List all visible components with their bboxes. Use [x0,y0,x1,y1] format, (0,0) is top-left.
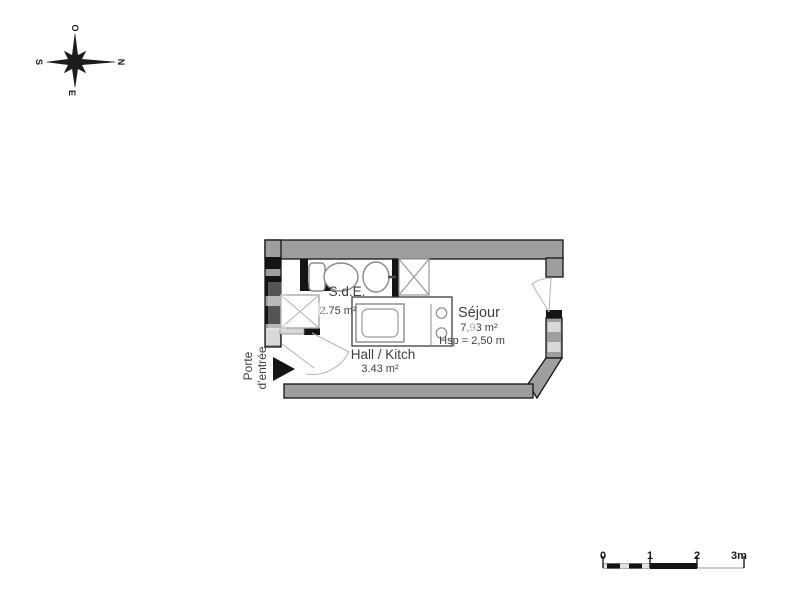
scale-dash [629,564,642,569]
room-area-sejour: 7,93 m² [460,322,498,334]
room-name-sde: S.d.E. [329,284,366,299]
entrance-label-line2: d'entrée [255,346,269,389]
sejour-door-closed [549,278,551,312]
sejour-door-leaf [532,284,549,312]
toilet-tank [309,263,325,291]
room-area-sde: 2.75 m² [319,305,357,317]
room-height-sejour: Hsp = 2,50 m [439,335,505,347]
wall-bottom [284,384,533,398]
shower [281,295,319,328]
washbasin-bowl [363,262,389,292]
room-name-hall: Hall / Kitch [351,347,416,362]
sde-door-arc [306,352,349,374]
compass-rose: O N S E [34,24,126,96]
wall-left-dark-segment [265,257,281,269]
watermark-fragment [268,282,286,330]
kitchen-block [352,297,452,346]
entrance-door-leaf [282,344,314,368]
scale-label-1: 1 [647,550,653,562]
entrance-label-line1: Porte [241,351,255,380]
sejour-door-arc [532,278,551,284]
floor-plan-svg: O N S E [0,0,800,600]
window-band-upper [548,322,561,332]
door-hinge-block-sde [304,328,320,335]
watermark-fragment [316,303,324,316]
room-name-sejour: Séjour [458,305,500,321]
window-band-lower [548,342,561,352]
scale-label-2: 2 [694,550,700,562]
closet [399,259,429,295]
compass-north-label: N [116,59,126,66]
compass-star [47,34,115,87]
kitchen-appliance-door [362,309,398,337]
scale-bar: 0 1 2 3m [600,550,747,569]
scale-dash [607,564,620,569]
scale-segment-1-2 [650,563,697,569]
scale-label-0: 0 [600,550,606,562]
sde-door-leaf [312,333,349,352]
wall-left-light-segment [266,328,280,345]
washbasin [363,262,396,292]
compass-south-label: S [34,59,44,65]
floor-plan: S.d.E. 2.75 m² Hall / Kitch 3.43 m² Séjo… [241,240,563,398]
room-area-hall: 3.43 m² [361,363,399,375]
compass-east-label: E [67,90,77,96]
floor-plan-page: O N S E [0,0,800,600]
scale-label-3m: 3m [731,550,747,562]
wall-top [265,240,563,259]
wall-right-upper [546,258,563,277]
hob-burner [436,308,446,318]
entrance-arrow [273,357,295,381]
watermark-fragment [468,320,477,333]
compass-west-label: O [70,24,80,31]
